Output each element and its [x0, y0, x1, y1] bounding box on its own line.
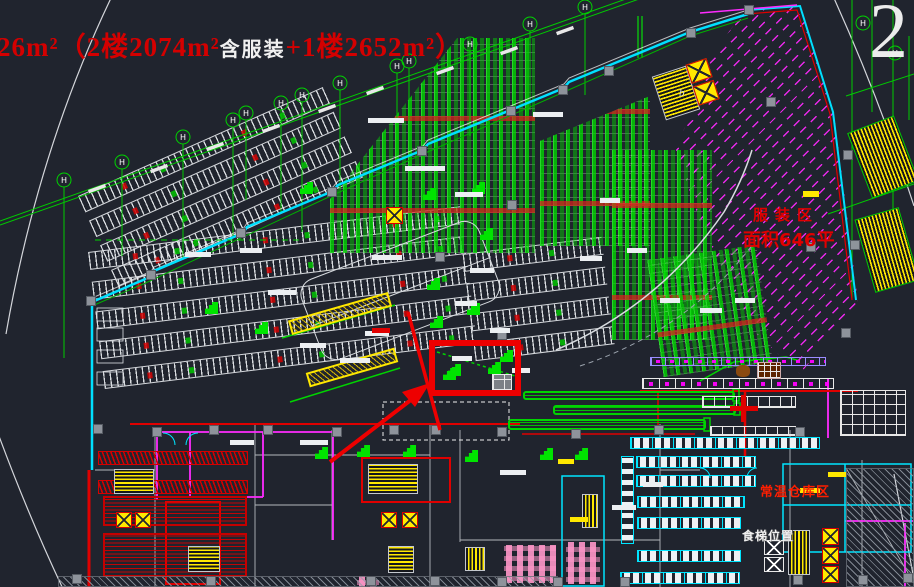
stair-letter-label: b	[679, 87, 685, 99]
clothing-zone-name: 服装区	[753, 204, 819, 225]
red-marker	[372, 328, 390, 333]
area-note: 26m²（2楼2074m² 含服装 +1楼2652m²）	[0, 25, 463, 64]
food-lift-label: 食梯位置	[742, 527, 794, 544]
red-highlight-annotation	[330, 312, 758, 462]
area-note-white-middle: 含服装	[220, 33, 286, 62]
area-note-red-suffix: +1楼2652m²）	[286, 25, 463, 64]
red-cross-v	[741, 395, 746, 422]
sheet-number: 2	[869, 0, 908, 76]
annotation-line	[408, 312, 440, 430]
area-note-red-prefix: 26m²（2楼2074m²	[0, 25, 220, 64]
cad-floorplan-canvas: H H H H H H H H H H H H H H H	[0, 0, 914, 587]
clothing-zone-area: 面积646平	[743, 226, 835, 252]
annotation-arrow-shaft	[330, 396, 416, 462]
highlight-rectangle	[432, 343, 518, 393]
warehouse-zone-label: 常温仓库区	[760, 481, 830, 500]
